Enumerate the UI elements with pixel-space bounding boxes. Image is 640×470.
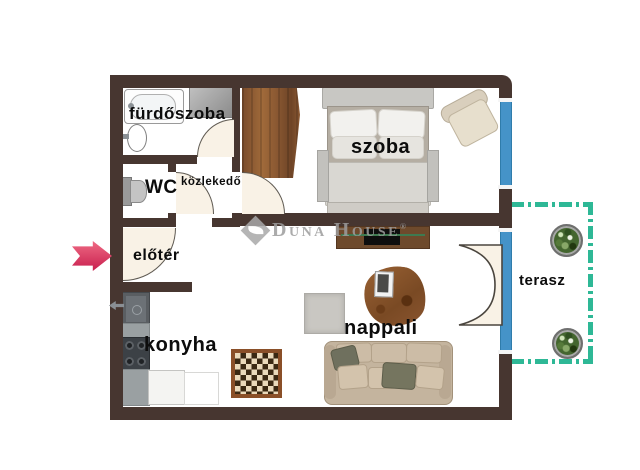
room-label-wc: WC [145, 177, 178, 199]
kitchen-cabinet-white [184, 372, 219, 405]
wall-top [110, 75, 512, 88]
bedroom-window [500, 101, 512, 186]
room-label-furdoszoba: fürdőszoba [129, 104, 226, 124]
wall-foyer-kitchen [118, 282, 192, 292]
wall-bottom [110, 407, 512, 420]
bed-pillow [377, 109, 425, 139]
room-label-terasz: terasz [519, 272, 565, 289]
chess-rug [231, 349, 282, 398]
potted-plant [550, 224, 583, 257]
entrance-arrow [72, 241, 112, 271]
sofa-back-cushion [371, 343, 407, 363]
bedroom-door [242, 172, 285, 214]
sofa-seat-pillow [415, 365, 445, 391]
sofa-seat-pillow [337, 364, 369, 391]
bed-side-rail [317, 150, 329, 202]
bathroom-door [197, 119, 234, 157]
watermark: DUNAHOUSE® [245, 219, 406, 242]
room-label-nappali: nappali [344, 317, 418, 340]
terrace-outline-bottom [511, 359, 593, 364]
wall-right-bottom [499, 352, 512, 408]
room-label-kozlekedo: közlekedő [181, 176, 241, 188]
wall-bathroom-bottom-left [123, 155, 197, 164]
wall-left [110, 75, 123, 420]
terrace-french-door [455, 242, 505, 328]
room-label-eloter: előtér [133, 247, 180, 265]
sink [125, 122, 148, 153]
bed-side-rail [427, 150, 439, 202]
wall-wc-right-top [168, 164, 176, 172]
potted-plant [552, 328, 583, 359]
fridge [122, 292, 150, 326]
terrace-outline-right [588, 202, 593, 364]
bed-pillow [329, 109, 377, 139]
kitchen-cabinet-white [148, 370, 185, 405]
room-label-szoba: szoba [351, 136, 410, 159]
armchair [438, 87, 502, 150]
sofa-pillow-dark [381, 362, 417, 390]
ottoman [304, 293, 345, 334]
terrace-door-frame-cap [498, 350, 512, 354]
toilet [122, 177, 146, 204]
sofa-back-cushion [406, 342, 443, 363]
room-label-konyha: konyha [144, 334, 217, 357]
floorplan: fürdőszoba WC közlekedő előtér konyha sz… [0, 0, 640, 470]
wall-hall-bottom-left [123, 218, 172, 227]
watermark-logo-icon [241, 216, 271, 246]
window-frame-cap [498, 185, 512, 189]
bed-blanket [325, 162, 431, 206]
terrace-outline-top [511, 202, 593, 207]
watermark-text: DUNAHOUSE® [272, 219, 406, 242]
kitchen-cabinet-low [120, 369, 150, 406]
sofa [324, 341, 451, 403]
window-frame-cap [498, 98, 512, 102]
terrace-door-frame-cap [498, 228, 512, 232]
wardrobe [242, 85, 300, 178]
photo-frame [374, 271, 394, 298]
